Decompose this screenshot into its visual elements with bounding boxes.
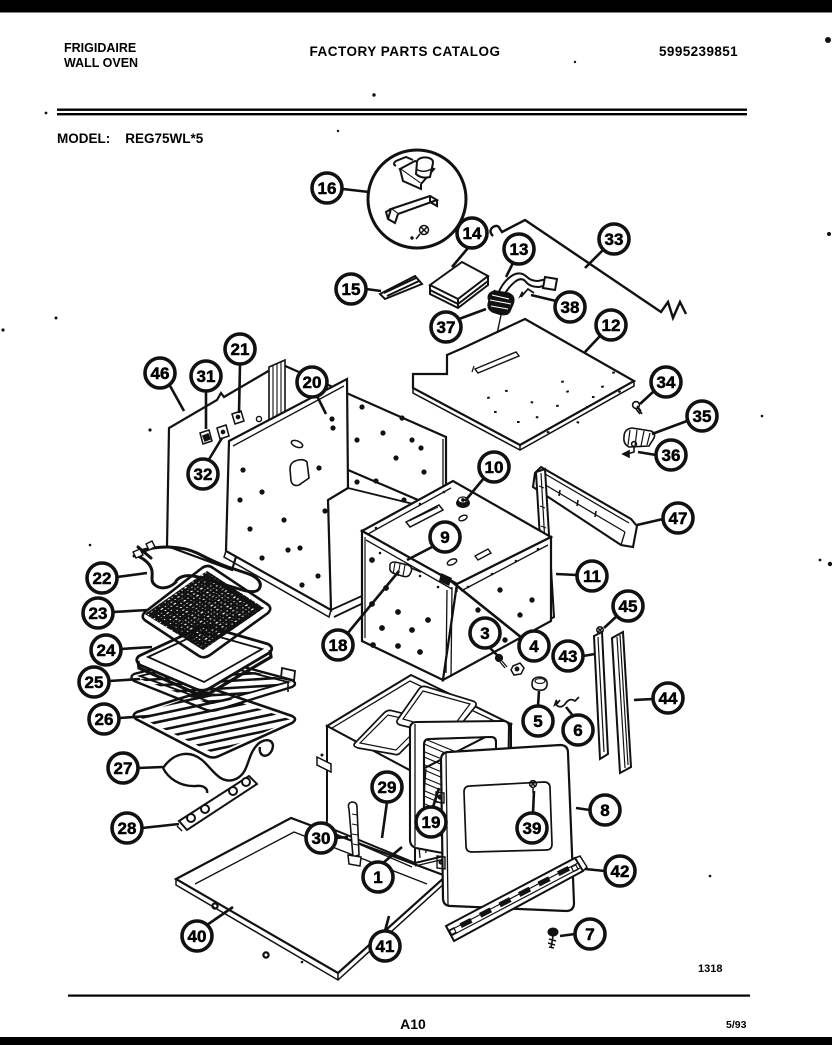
svg-text:FACTORY PARTS CATALOG: FACTORY PARTS CATALOG [309, 44, 500, 59]
svg-text:FRIGIDAIRE: FRIGIDAIRE [64, 41, 136, 55]
svg-text:5995239851: 5995239851 [659, 44, 738, 59]
svg-text:6: 6 [573, 721, 582, 740]
svg-text:16: 16 [318, 179, 337, 198]
svg-text:25: 25 [85, 673, 104, 692]
svg-text:29: 29 [378, 778, 397, 797]
svg-text:5/93: 5/93 [726, 1019, 747, 1031]
svg-text:23: 23 [89, 604, 108, 623]
svg-text:47: 47 [669, 509, 688, 528]
svg-text:20: 20 [303, 373, 322, 392]
svg-text:31: 31 [197, 367, 216, 386]
svg-text:45: 45 [619, 597, 638, 616]
svg-text:36: 36 [662, 446, 681, 465]
svg-text:11: 11 [583, 567, 601, 586]
svg-text:26: 26 [95, 710, 114, 729]
svg-text:13: 13 [510, 240, 529, 259]
svg-text:14: 14 [463, 224, 482, 243]
svg-text:43: 43 [559, 647, 578, 666]
svg-text:9: 9 [440, 528, 449, 547]
svg-text:34: 34 [657, 373, 676, 392]
svg-text:46: 46 [151, 364, 170, 383]
svg-text:42: 42 [611, 862, 630, 881]
svg-text:7: 7 [585, 925, 594, 944]
svg-text:41: 41 [376, 937, 395, 956]
svg-text:44: 44 [659, 689, 678, 708]
svg-text:24: 24 [97, 641, 116, 660]
svg-text:A10: A10 [400, 1016, 426, 1032]
svg-text:35: 35 [693, 407, 712, 426]
svg-text:15: 15 [342, 280, 361, 299]
svg-text:12: 12 [602, 316, 621, 335]
svg-text:40: 40 [188, 927, 207, 946]
svg-text:19: 19 [422, 813, 441, 832]
svg-text:WALL OVEN: WALL OVEN [64, 56, 138, 70]
svg-text:3: 3 [480, 624, 489, 643]
svg-text:5: 5 [533, 712, 542, 731]
svg-text:32: 32 [194, 465, 213, 484]
svg-text:38: 38 [561, 298, 580, 317]
svg-text:4: 4 [529, 637, 539, 656]
svg-text:1318: 1318 [698, 963, 722, 975]
svg-text:33: 33 [605, 230, 624, 249]
svg-text:10: 10 [485, 458, 504, 477]
svg-text:37: 37 [437, 318, 456, 337]
svg-text:1: 1 [373, 868, 382, 887]
svg-text:18: 18 [329, 636, 348, 655]
svg-text:28: 28 [118, 819, 137, 838]
svg-text:27: 27 [114, 759, 133, 778]
svg-text:30: 30 [312, 829, 331, 848]
svg-text:MODEL: REG75WL*5: MODEL: REG75WL*5 [57, 131, 204, 146]
svg-text:22: 22 [93, 569, 112, 588]
svg-text:21: 21 [231, 340, 250, 359]
svg-text:8: 8 [600, 801, 609, 820]
svg-text:39: 39 [523, 819, 542, 838]
